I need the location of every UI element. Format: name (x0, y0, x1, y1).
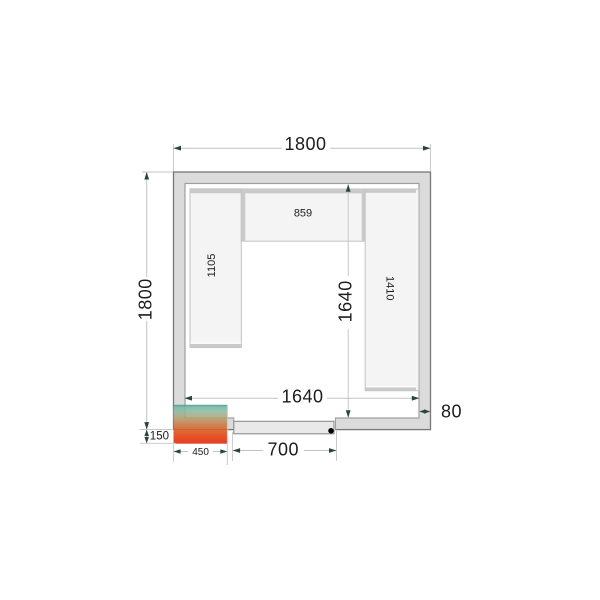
svg-text:859: 859 (294, 208, 312, 220)
svg-text:700: 700 (268, 439, 300, 459)
svg-text:1410: 1410 (384, 276, 396, 300)
svg-text:150: 150 (150, 431, 169, 443)
svg-text:1640: 1640 (335, 280, 355, 322)
svg-text:1800: 1800 (284, 134, 326, 154)
svg-text:80: 80 (441, 402, 462, 422)
svg-text:1800: 1800 (136, 278, 156, 320)
svg-text:1640: 1640 (281, 387, 323, 407)
svg-text:1105: 1105 (206, 254, 218, 278)
svg-text:450: 450 (192, 447, 209, 458)
